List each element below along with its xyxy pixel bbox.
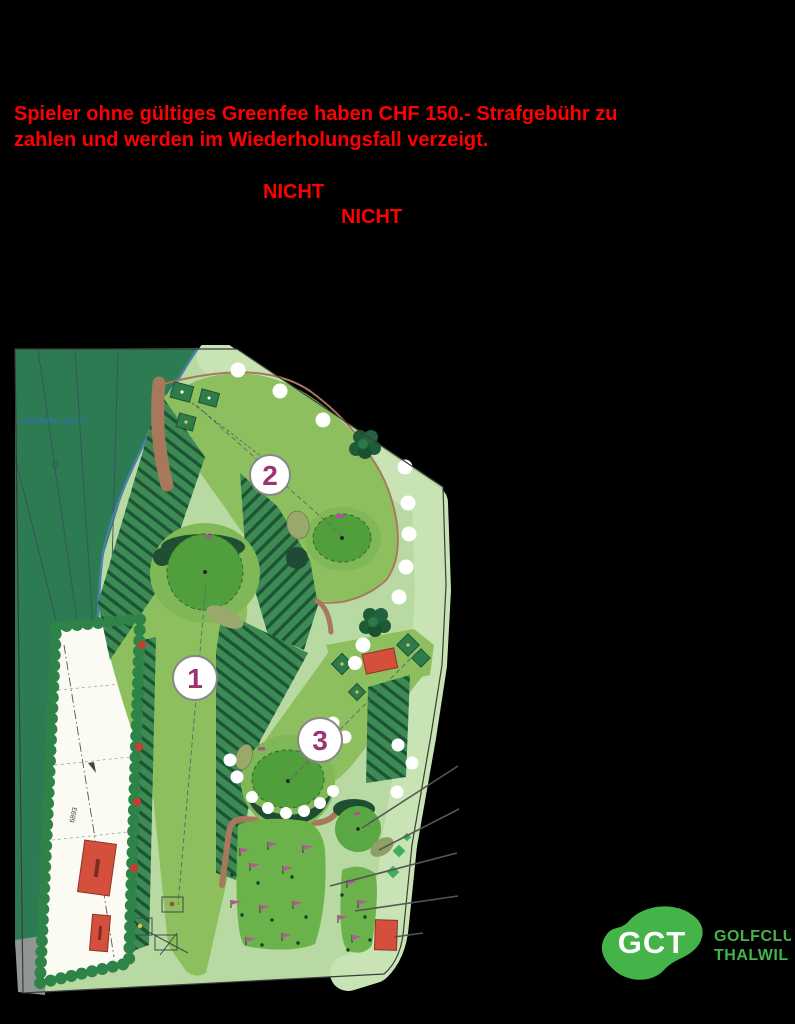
svg-text:3: 3 <box>312 725 328 756</box>
green-2 <box>284 507 381 571</box>
logo-name-line1: GOLFCLUB <box>714 928 791 945</box>
logo-monogram: GCT <box>618 925 686 960</box>
greenfee-warning-text: Spieler ohne gültiges Greenfee haben CHF… <box>14 101 694 153</box>
svg-text:1: 1 <box>187 663 203 694</box>
svg-text:2: 2 <box>262 460 278 491</box>
hatch-band-hole3-right <box>366 675 410 783</box>
hole-marker-2: 2 <box>250 455 290 495</box>
nicht-callout-1: NICHT <box>263 181 324 204</box>
logo-svg: GCT GOLFCLUB THALWIL <box>596 900 791 995</box>
greenfee-warning-line1: Spieler ohne gültiges Greenfee haben CHF… <box>14 101 694 127</box>
golfclub-thalwil-logo: GCT GOLFCLUB THALWIL <box>596 900 791 995</box>
building-bottom-right <box>374 920 397 951</box>
logo-name-line2: THALWIL <box>714 947 789 964</box>
hole-marker-1: 1 <box>173 656 217 700</box>
course-plan-svg: Zaunhöhe: 12.7 m 6893 <box>10 345 460 1005</box>
fence-height-label: Zaunhöhe: 12.7 m <box>22 416 86 425</box>
nicht-callout-2: NICHT <box>341 206 402 229</box>
hole-marker-3: 3 <box>298 718 342 762</box>
greenfee-warning-line2: zahlen und werden im Wiederholungsfall v… <box>14 127 694 153</box>
golf-course-map: Zaunhöhe: 12.7 m 6893 <box>10 345 460 1005</box>
